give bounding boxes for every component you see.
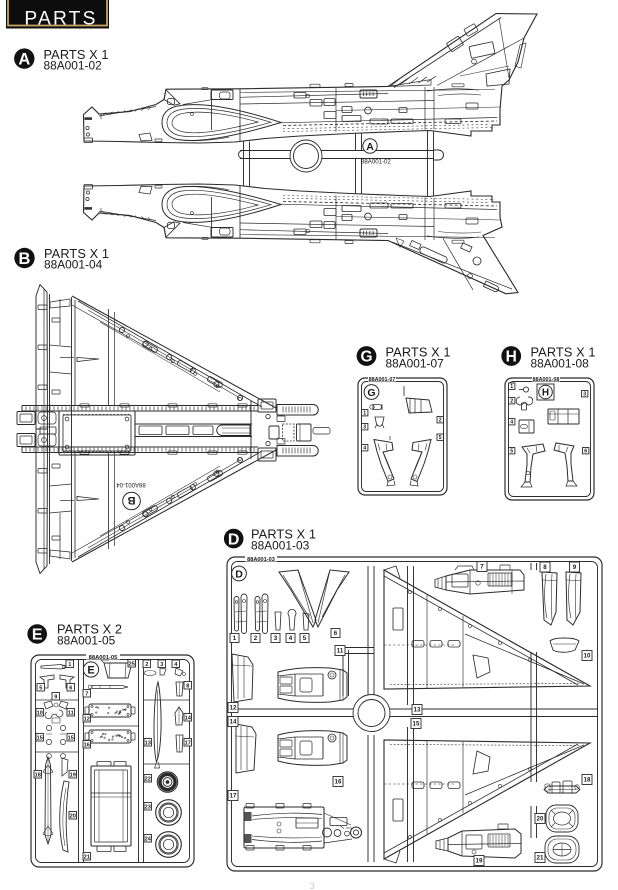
svg-text:88A001-02: 88A001-02 [44, 59, 103, 73]
svg-text:3: 3 [583, 392, 586, 398]
svg-text:10: 10 [584, 653, 591, 660]
svg-text:1: 1 [363, 411, 366, 417]
svg-text:22: 22 [145, 776, 151, 782]
svg-text:11: 11 [68, 710, 74, 716]
svg-text:88A001-05: 88A001-05 [57, 633, 116, 647]
svg-text:23: 23 [145, 804, 151, 810]
svg-text:4: 4 [510, 420, 513, 426]
svg-text:88A001-03: 88A001-03 [251, 538, 310, 552]
svg-text:24: 24 [145, 836, 152, 842]
svg-text:88A001-04: 88A001-04 [44, 258, 103, 272]
svg-text:PARTS: PARTS [24, 8, 97, 29]
svg-text:88A001-08: 88A001-08 [533, 377, 560, 383]
svg-text:A: A [366, 141, 374, 153]
svg-text:7: 7 [85, 691, 88, 697]
svg-text:3: 3 [309, 881, 314, 890]
svg-text:3: 3 [274, 635, 278, 642]
svg-text:H: H [506, 349, 517, 366]
svg-text:A: A [18, 50, 30, 68]
svg-text:88A001-08: 88A001-08 [531, 356, 590, 370]
svg-text:7: 7 [480, 564, 484, 571]
svg-text:5: 5 [39, 685, 42, 691]
svg-text:16: 16 [84, 742, 90, 748]
svg-text:19: 19 [476, 858, 483, 865]
svg-text:G: G [360, 349, 372, 366]
svg-text:14: 14 [230, 719, 237, 726]
svg-text:11: 11 [337, 648, 344, 655]
svg-text:88A001-04: 88A001-04 [116, 481, 146, 487]
svg-text:4: 4 [363, 446, 366, 452]
svg-text:B: B [19, 250, 31, 268]
svg-text:D: D [235, 568, 243, 580]
svg-text:2: 2 [254, 635, 258, 642]
svg-text:9: 9 [573, 564, 577, 571]
svg-text:18: 18 [35, 772, 41, 778]
svg-text:6: 6 [334, 630, 338, 637]
svg-text:88A001-07: 88A001-07 [369, 377, 396, 383]
svg-text:16: 16 [335, 779, 342, 786]
svg-text:88A001-03: 88A001-03 [247, 557, 275, 563]
svg-text:6: 6 [69, 685, 72, 691]
svg-text:1: 1 [510, 384, 513, 390]
svg-text:8: 8 [543, 564, 547, 571]
svg-text:13: 13 [145, 740, 151, 746]
svg-text:E: E [87, 664, 94, 676]
svg-text:18: 18 [584, 777, 591, 784]
svg-text:9: 9 [54, 694, 57, 700]
svg-text:10: 10 [37, 710, 43, 716]
svg-text:H: H [542, 388, 549, 399]
svg-text:25: 25 [129, 661, 135, 667]
svg-text:13: 13 [414, 707, 421, 714]
svg-text:17: 17 [230, 793, 237, 800]
svg-text:15: 15 [68, 735, 74, 741]
svg-text:15: 15 [413, 721, 420, 728]
svg-text:12: 12 [230, 705, 237, 712]
svg-text:2: 2 [439, 418, 442, 424]
svg-text:D: D [228, 531, 240, 548]
svg-text:88A001-02: 88A001-02 [361, 159, 391, 166]
svg-text:B: B [127, 494, 135, 506]
svg-text:14: 14 [185, 715, 192, 721]
svg-text:3: 3 [160, 662, 163, 668]
svg-text:4: 4 [289, 635, 293, 642]
svg-text:1: 1 [233, 635, 237, 642]
svg-text:21: 21 [84, 854, 90, 860]
svg-text:20: 20 [537, 816, 544, 823]
svg-text:5: 5 [510, 449, 513, 455]
svg-text:5: 5 [439, 435, 442, 441]
svg-text:G: G [367, 387, 375, 399]
svg-text:88A001-07: 88A001-07 [386, 356, 445, 370]
svg-text:19: 19 [70, 772, 76, 778]
svg-text:20: 20 [70, 813, 76, 819]
svg-text:1: 1 [68, 662, 71, 668]
svg-text:3: 3 [363, 425, 366, 431]
svg-text:E: E [32, 627, 43, 644]
svg-text:2: 2 [145, 662, 148, 668]
svg-text:2: 2 [510, 399, 513, 405]
svg-text:5: 5 [303, 635, 307, 642]
svg-text:12: 12 [84, 716, 90, 722]
svg-text:8: 8 [186, 683, 189, 689]
svg-text:21: 21 [537, 855, 544, 862]
svg-text:6: 6 [584, 449, 587, 455]
svg-text:17: 17 [185, 740, 191, 746]
svg-text:15: 15 [37, 735, 43, 741]
